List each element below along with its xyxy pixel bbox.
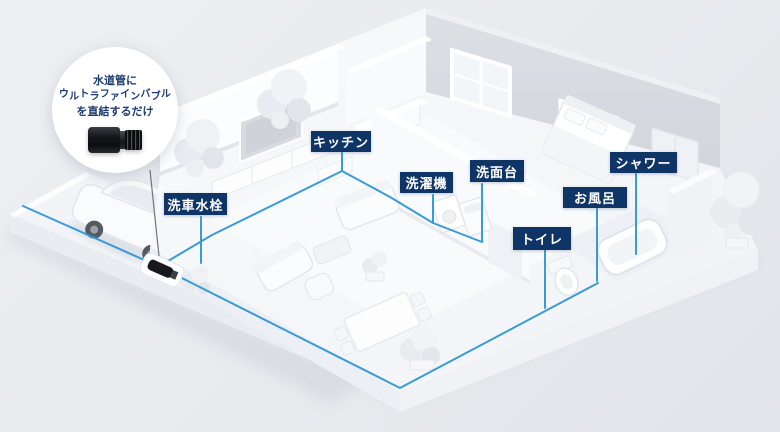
label-shower: シャワー xyxy=(610,152,677,173)
label-kitchen: キッチン xyxy=(311,131,371,152)
label-toilet: トイレ xyxy=(513,227,571,250)
label-car-wash-faucet: 洗車水栓 xyxy=(164,193,227,215)
product-icon xyxy=(88,127,142,153)
callout-bubble: 水道管に ウルトラファインバブル を直結するだけ xyxy=(52,47,178,173)
callout-line-3: を直結するだけ xyxy=(77,104,154,120)
label-bath: お風呂 xyxy=(563,187,627,208)
callout-line-2: ウルトラファインバブル xyxy=(59,89,171,104)
callout-line-1: 水道管に xyxy=(93,73,137,89)
isometric-house-diagram: 水道管に ウルトラファインバブル を直結するだけ 洗車水栓 キッチン 洗濯機 洗… xyxy=(0,0,780,432)
label-washing-machine: 洗濯機 xyxy=(400,172,453,193)
label-washbasin: 洗面台 xyxy=(470,160,524,182)
